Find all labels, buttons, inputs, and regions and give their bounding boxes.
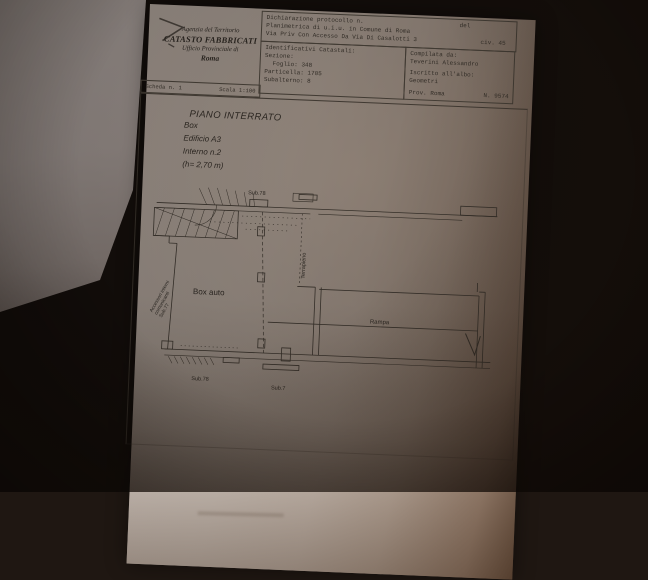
plan-interno: Interno n.2 <box>183 147 281 161</box>
bottom-wall-hatch <box>168 356 214 365</box>
agency-header: Agenzia del Territorio CATASTO FABBRICAT… <box>158 25 263 64</box>
plan-title-block: PIANO INTERRATO Box Edificio A3 Interno … <box>182 110 282 174</box>
register-number: N. 9574 <box>483 92 509 101</box>
pencil-smudge <box>198 511 284 517</box>
label-rampa: Rampa <box>370 319 390 326</box>
label-terrapieno: Terrapieno <box>301 253 308 279</box>
agency-line4: Roma <box>158 52 262 64</box>
door-arc <box>195 204 217 226</box>
scala-value: Scala 1:100 <box>219 86 256 95</box>
prov-value: Prov. Roma <box>409 89 445 99</box>
compiler-box: Compilata da: Teverini Alessandro Iscrit… <box>403 47 515 105</box>
plan-height: (h= 2,70 m) <box>182 159 280 173</box>
plan-edificio: Edificio A3 <box>183 134 281 148</box>
civ-number: civ. 45 <box>480 39 506 48</box>
stair-treads <box>199 187 256 206</box>
catastal-ids-box: Identificativi Catastali: Sezione: Fogli… <box>258 41 406 100</box>
photo-of-cadastral-document: { "photo": { "background_color": "#1f171… <box>0 0 648 492</box>
label-accessori: Accessori interni comunicanti Sub.77 <box>149 280 181 319</box>
middle-partition <box>294 213 324 355</box>
staircase <box>153 185 255 239</box>
floor-plan-drawing: Sub.78 Terrapieno Accessori interni comu… <box>142 178 512 435</box>
label-sub78-bottom: Sub.78 <box>191 376 209 383</box>
declaration-table: Dichiarazione protocollo n. del Planimet… <box>258 11 517 105</box>
ramp-arrow <box>465 333 481 355</box>
document-paper: Agenzia del Territorio CATASTO FABBRICAT… <box>127 4 536 580</box>
label-box-auto: Box auto <box>193 287 225 297</box>
drawing-frame: PIANO INTERRATO Box Edificio A3 Interno … <box>126 93 528 461</box>
top-wall <box>156 187 498 221</box>
protocol-del-label: del <box>459 22 470 30</box>
dotted-hatch-band <box>210 215 310 232</box>
dashed-boundary <box>252 212 270 353</box>
label-sub78-top: Sub.78 <box>248 190 266 197</box>
label-sub7-bottom: Sub.7 <box>271 385 286 392</box>
scheda-number: Scheda n. 1 <box>145 83 182 92</box>
bottom-wall <box>164 343 491 379</box>
